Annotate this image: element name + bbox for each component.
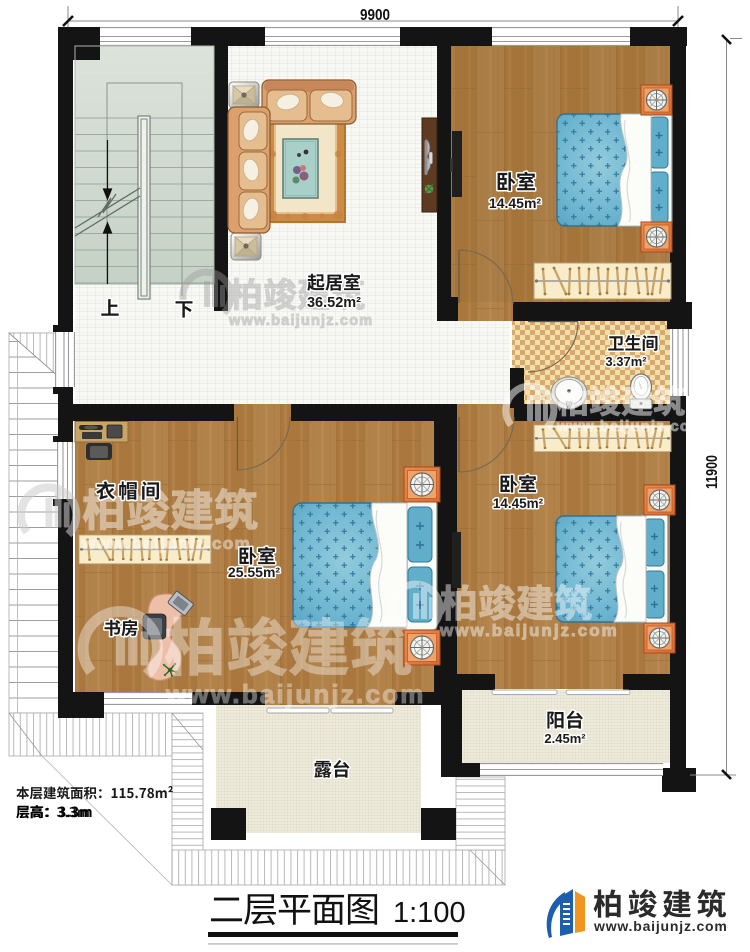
svg-text:www.baijunjz.com: www.baijunjz.com	[439, 621, 619, 640]
svg-text:www.baijunjz.com: www.baijunjz.com	[228, 313, 373, 329]
svg-text:www.baijunjz.com: www.baijunjz.com	[165, 679, 426, 709]
svg-text:3.37m²: 3.37m²	[605, 354, 647, 369]
svg-text:36.52m²: 36.52m²	[307, 295, 361, 311]
svg-text:www.baijunjz.com: www.baijunjz.com	[556, 419, 705, 435]
svg-text:1:100: 1:100	[393, 897, 466, 929]
svg-text:www.baijunjz.com: www.baijunjz.com	[81, 534, 251, 553]
svg-text:www.baijunjz.com: www.baijunjz.com	[593, 918, 728, 934]
svg-text:www.: www.	[721, 402, 750, 417]
svg-text:9900: 9900	[360, 7, 390, 24]
svg-text:2.45m²: 2.45m²	[544, 731, 586, 746]
svg-text:14.45m²: 14.45m²	[489, 195, 541, 211]
svg-text:25.55m²: 25.55m²	[228, 564, 280, 580]
svg-text:11900: 11900	[704, 455, 721, 489]
svg-text:14.45m²: 14.45m²	[493, 496, 544, 511]
